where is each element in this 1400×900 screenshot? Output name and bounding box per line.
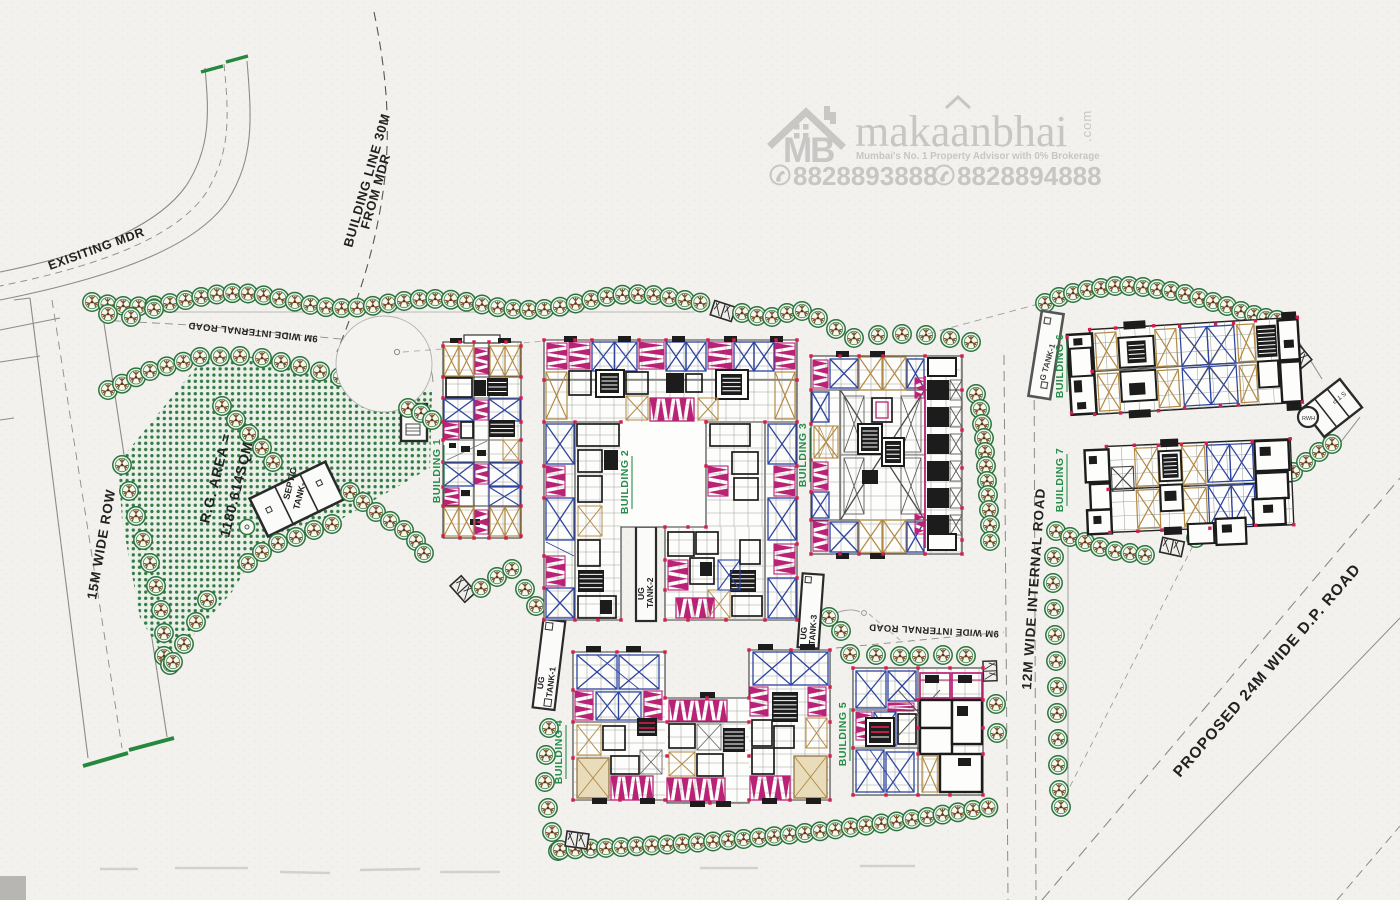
svg-text:BUILDING 3: BUILDING 3 bbox=[797, 423, 809, 488]
svg-text:.com: .com bbox=[1079, 110, 1094, 142]
svg-text:RWH: RWH bbox=[1302, 416, 1315, 422]
svg-text:makaanbhai: makaanbhai bbox=[855, 107, 1068, 156]
svg-text:BUILDING 6: BUILDING 6 bbox=[1054, 334, 1066, 399]
svg-text:8828893888: 8828893888 bbox=[793, 161, 938, 191]
svg-text:8828894888: 8828894888 bbox=[957, 161, 1102, 191]
svg-text:TANK-2: TANK-2 bbox=[645, 577, 655, 608]
svg-text:BUILDING 4: BUILDING 4 bbox=[553, 720, 565, 785]
svg-text:BUILDING 2: BUILDING 2 bbox=[619, 450, 631, 515]
svg-text:BUILDING 5: BUILDING 5 bbox=[837, 702, 849, 767]
svg-text:BUILDING 1: BUILDING 1 bbox=[431, 439, 443, 504]
svg-text:BUILDING 7: BUILDING 7 bbox=[1054, 448, 1066, 513]
